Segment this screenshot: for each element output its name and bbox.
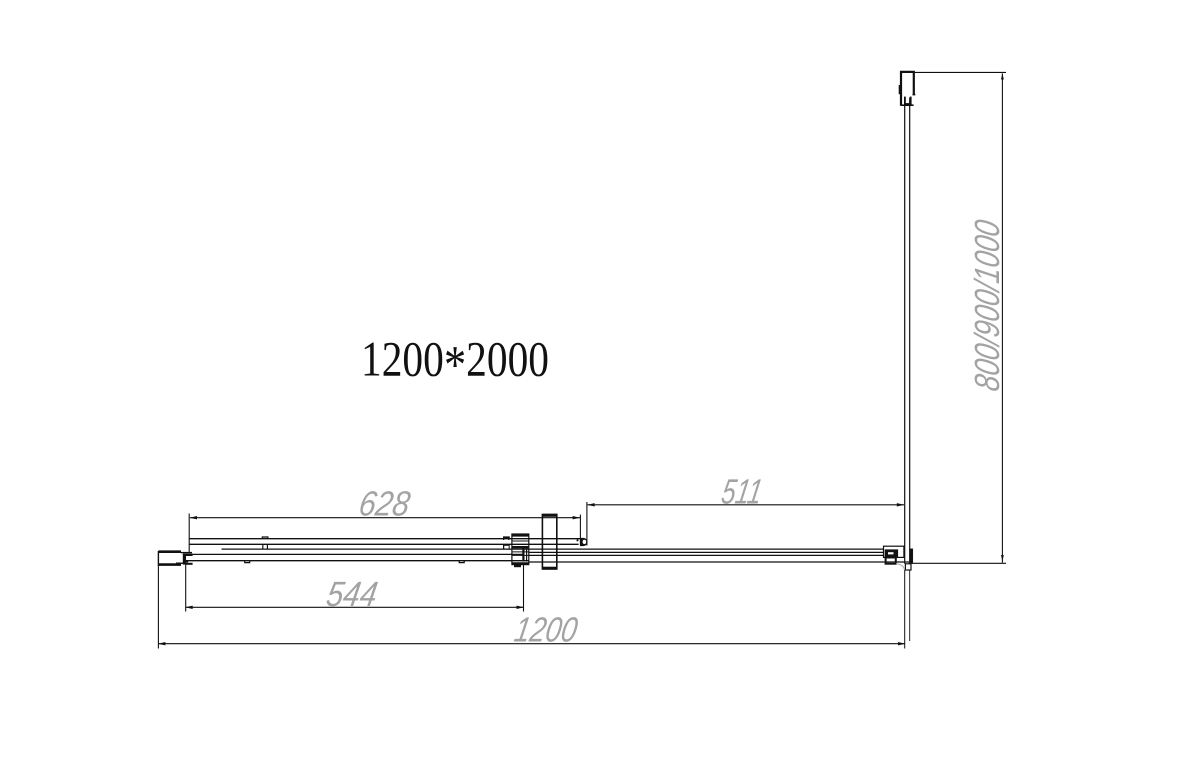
svg-text:511: 511 bbox=[719, 473, 766, 512]
svg-text:628: 628 bbox=[356, 485, 413, 524]
svg-text:544: 544 bbox=[324, 575, 381, 614]
svg-text:1200*2000: 1200*2000 bbox=[361, 331, 549, 395]
svg-text:1200: 1200 bbox=[512, 611, 581, 650]
svg-text:800/900/1000: 800/900/1000 bbox=[968, 217, 1007, 394]
